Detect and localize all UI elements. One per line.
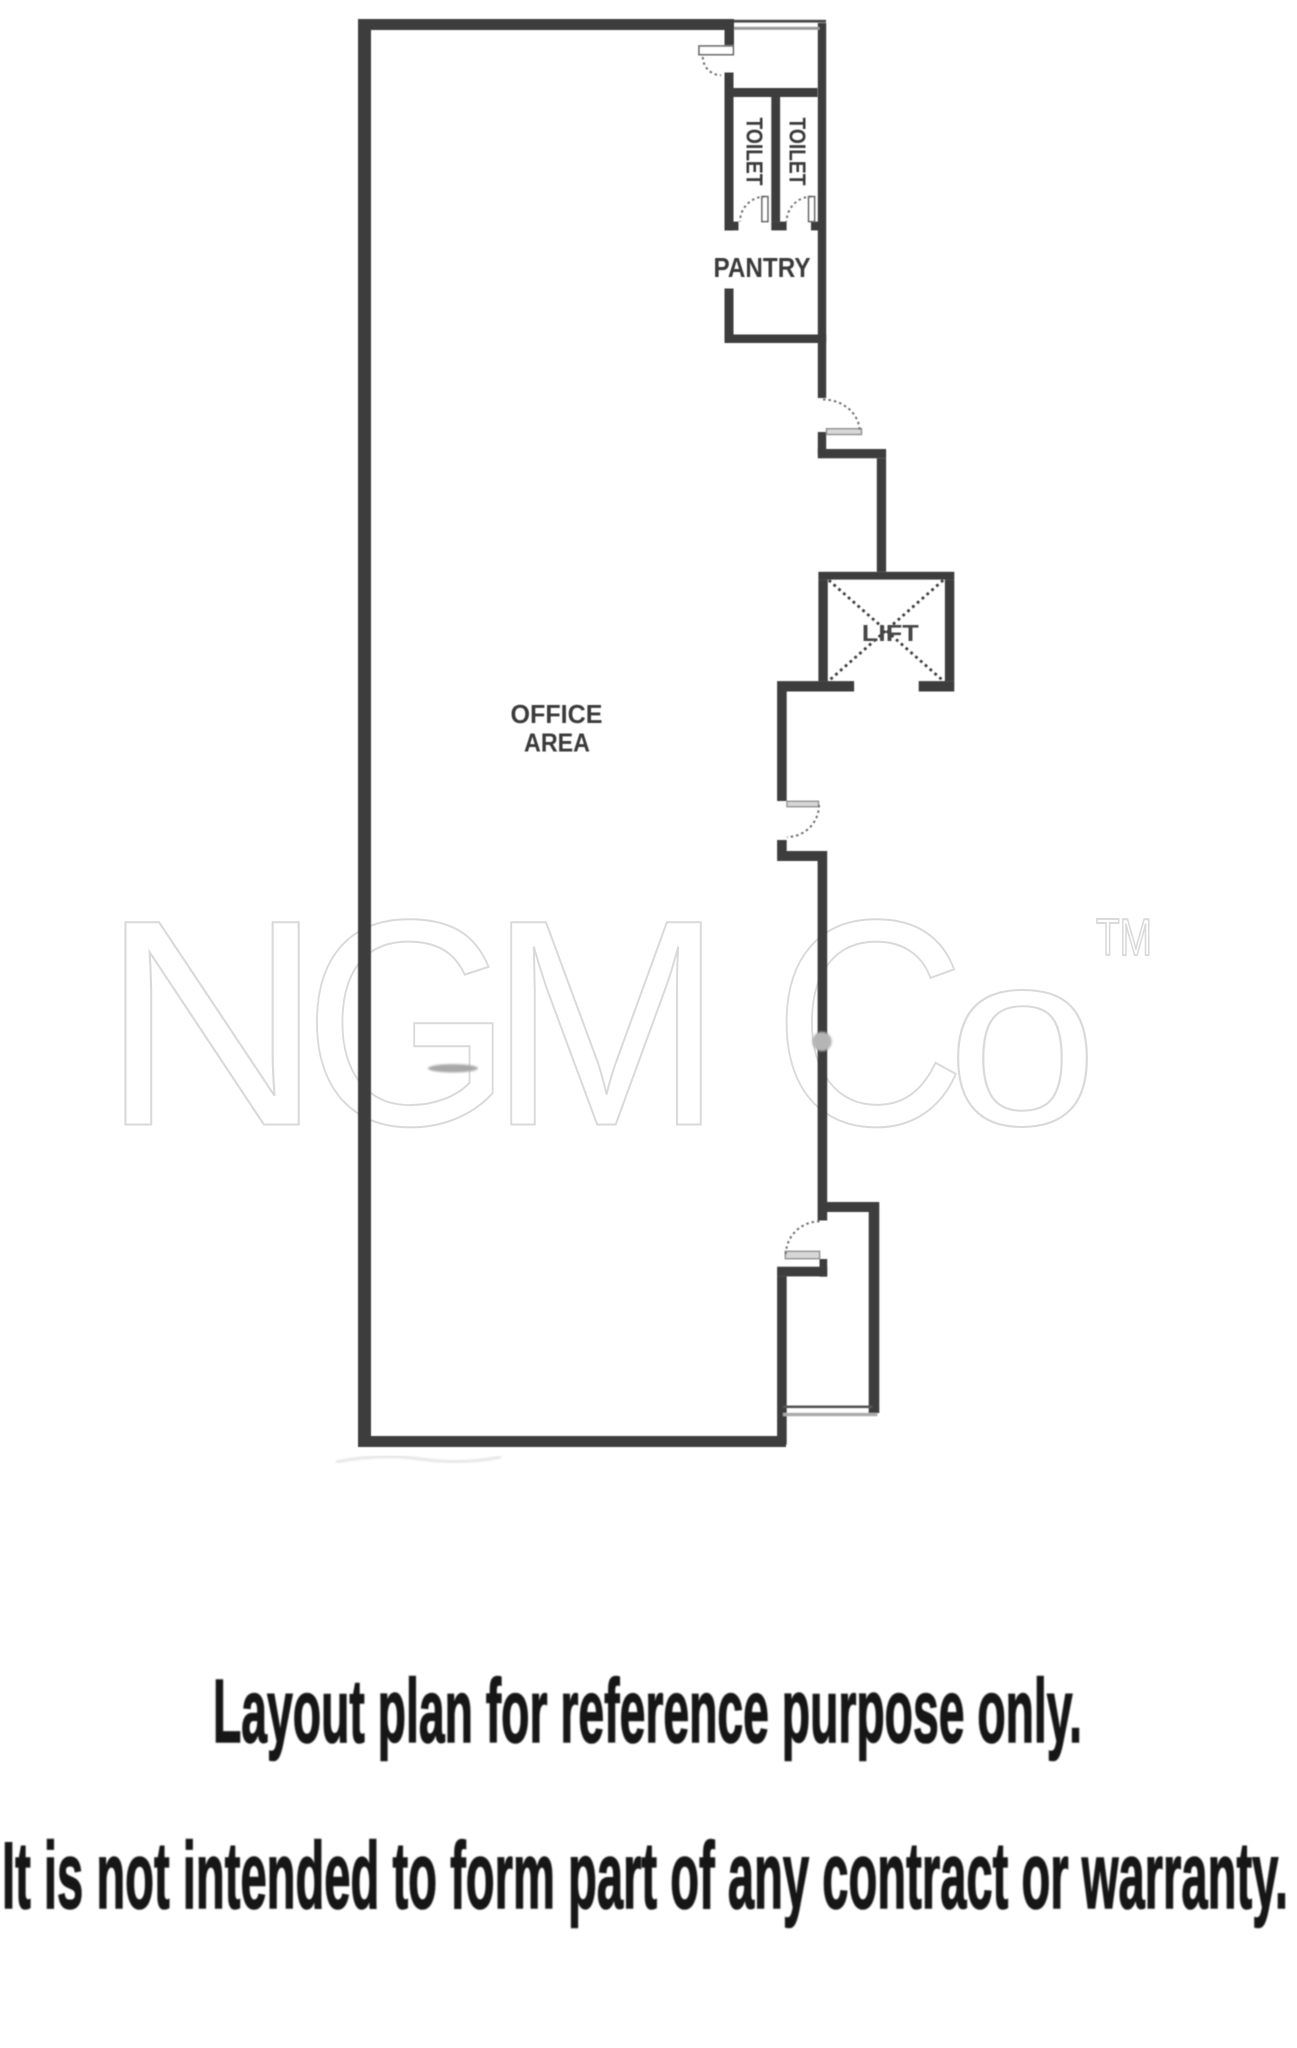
svg-text:TOILET: TOILET [785,118,811,186]
svg-text:C: C [773,860,966,1188]
svg-text:It is not intended to form par: It is not intended to form part of any c… [2,1823,1288,1929]
svg-text:TOILET: TOILET [742,118,768,186]
svg-text:N: N [100,860,324,1188]
svg-text:LIFT: LIFT [862,620,920,646]
svg-text:M: M [488,860,724,1188]
svg-text:o: o [947,899,1099,1178]
svg-text:PANTRY: PANTRY [714,252,811,283]
svg-text:G: G [303,860,512,1188]
svg-text:Layout plan for reference purp: Layout plan for reference purpose only. [213,1662,1082,1762]
svg-text:OFFICE: OFFICE [511,699,603,729]
svg-text:TM: TM [1096,909,1152,967]
svg-text:AREA: AREA [524,728,590,758]
